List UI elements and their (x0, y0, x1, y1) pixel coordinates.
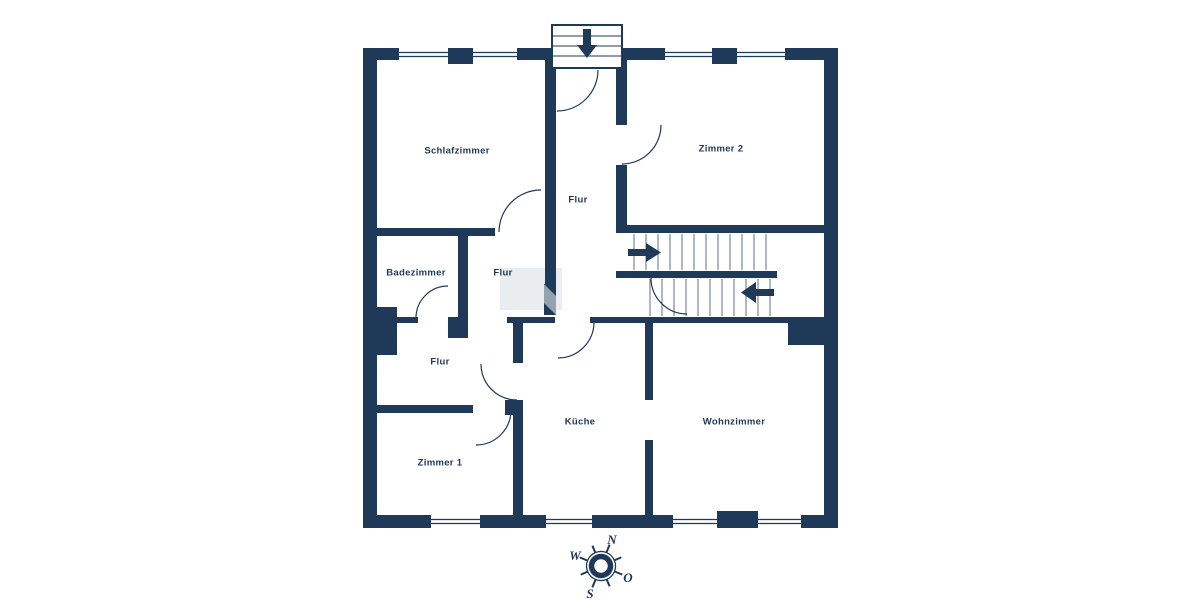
room-label-flur-unten: Flur (430, 357, 449, 368)
walls (363, 48, 838, 528)
stairwell-door-arc (651, 278, 687, 314)
schlafzimmer-door-arc (499, 190, 541, 232)
flur-kueche-door-arc (558, 322, 594, 358)
compass-rose-icon: N W O S (569, 532, 633, 600)
entrance-stairs-icon (552, 25, 622, 68)
zimmer1-door-arc (476, 410, 511, 445)
kueche-flur-door-arc (481, 364, 517, 400)
room-label-zimmer2: Zimmer 2 (699, 144, 744, 155)
stair-up-arrow-icon (628, 243, 661, 262)
room-label-badezimmer: Badezimmer (386, 268, 446, 279)
compass-west-label: W (569, 548, 582, 563)
room-label-wohnzimmer: Wohnzimmer (703, 417, 765, 428)
compass-north-label: N (606, 532, 617, 547)
door-panel-icon (544, 284, 556, 315)
room-label-kueche: Küche (565, 417, 596, 428)
entrance-door-arc (557, 70, 598, 111)
zimmer2-door-arc (622, 125, 661, 164)
room-label-zimmer1: Zimmer 1 (418, 458, 463, 469)
floor-plan-drawing: N W O S (0, 0, 1200, 600)
room-label-flur-mitte: Flur (493, 268, 512, 279)
room-label-flur-oben: Flur (568, 195, 587, 206)
floor-plan: N W O S Schlafzimmer Zimmer 2 Flur Badez… (0, 0, 1200, 600)
room-label-schlafzimmer: Schlafzimmer (424, 146, 489, 157)
compass-east-label: O (623, 570, 633, 585)
compass-south-label: S (586, 586, 593, 600)
badezimmer-door-arc (416, 286, 448, 318)
